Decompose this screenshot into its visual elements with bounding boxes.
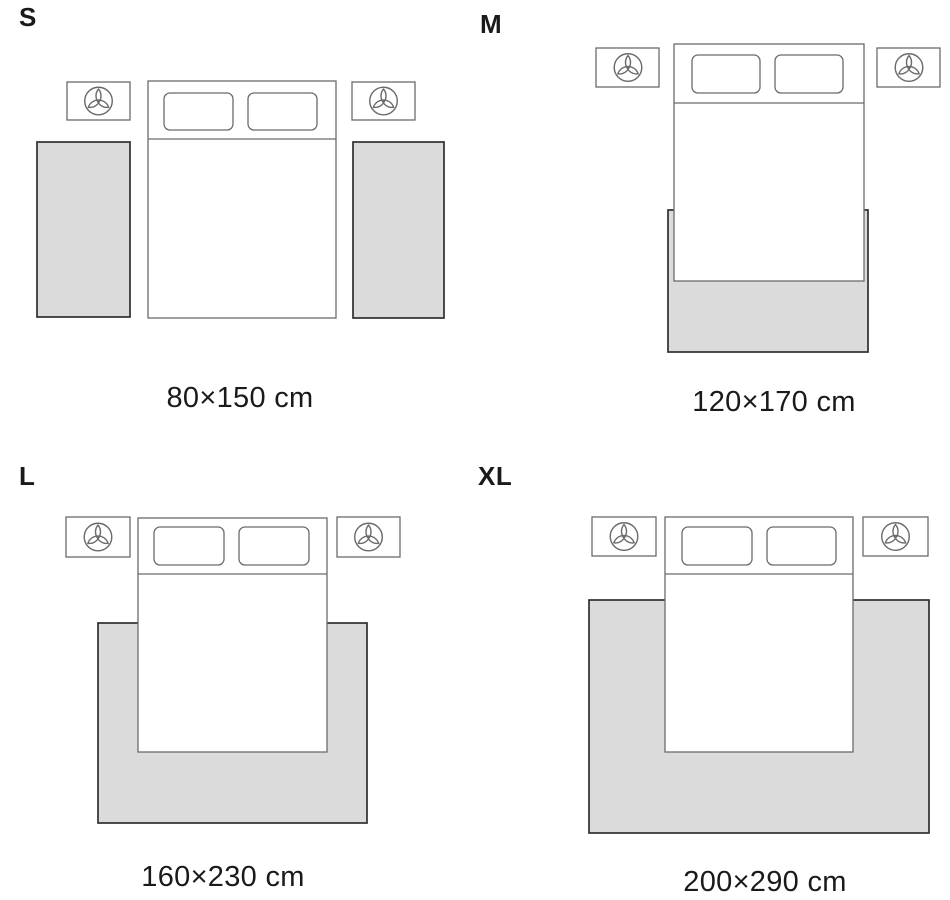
pillow-right <box>767 527 836 565</box>
pillow-right <box>775 55 843 93</box>
diagram-m <box>475 0 950 450</box>
panel-size-s: S 80×150 cm <box>0 0 475 450</box>
diagram-l <box>0 450 475 900</box>
size-caption-m: 120×170 cm <box>614 387 934 419</box>
panel-size-l: L 160×230 cm <box>0 450 475 900</box>
pillow-left <box>682 527 752 565</box>
size-caption-s: 80×150 cm <box>80 383 400 415</box>
pillow-right <box>239 527 309 565</box>
diagram-xl <box>475 450 950 900</box>
pillow-right <box>248 93 317 130</box>
size-caption-l: 160×230 cm <box>63 862 383 894</box>
size-caption-xl: 200×290 cm <box>605 867 925 899</box>
rug-left <box>37 142 130 317</box>
pillow-left <box>154 527 224 565</box>
pillow-left <box>164 93 233 130</box>
rug-right <box>353 142 444 318</box>
pillow-left <box>692 55 760 93</box>
panel-size-xl: XL 200×290 cm <box>475 450 950 900</box>
rug-size-guide: { "colors": { "page_bg": "#ffffff", "tex… <box>0 0 950 900</box>
panel-size-m: M 120×170 cm <box>475 0 950 450</box>
